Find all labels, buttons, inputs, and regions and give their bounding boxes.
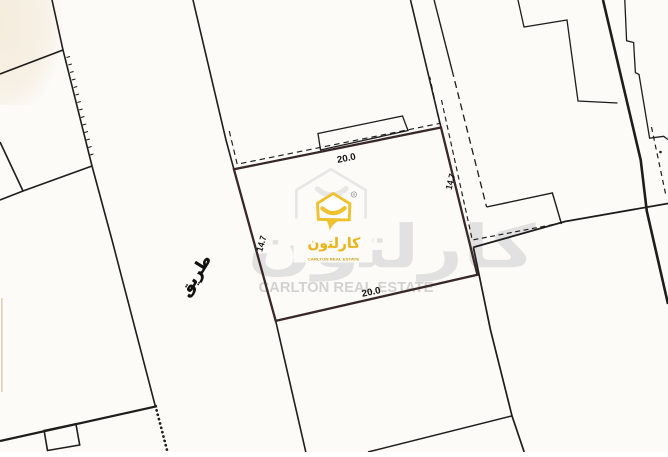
svg-text:CARLTON REAL ESTATE: CARLTON REAL ESTATE xyxy=(308,257,360,261)
svg-text:CARLTON REAL ESTATE: CARLTON REAL ESTATE xyxy=(259,280,434,296)
svg-text:R: R xyxy=(352,192,355,197)
